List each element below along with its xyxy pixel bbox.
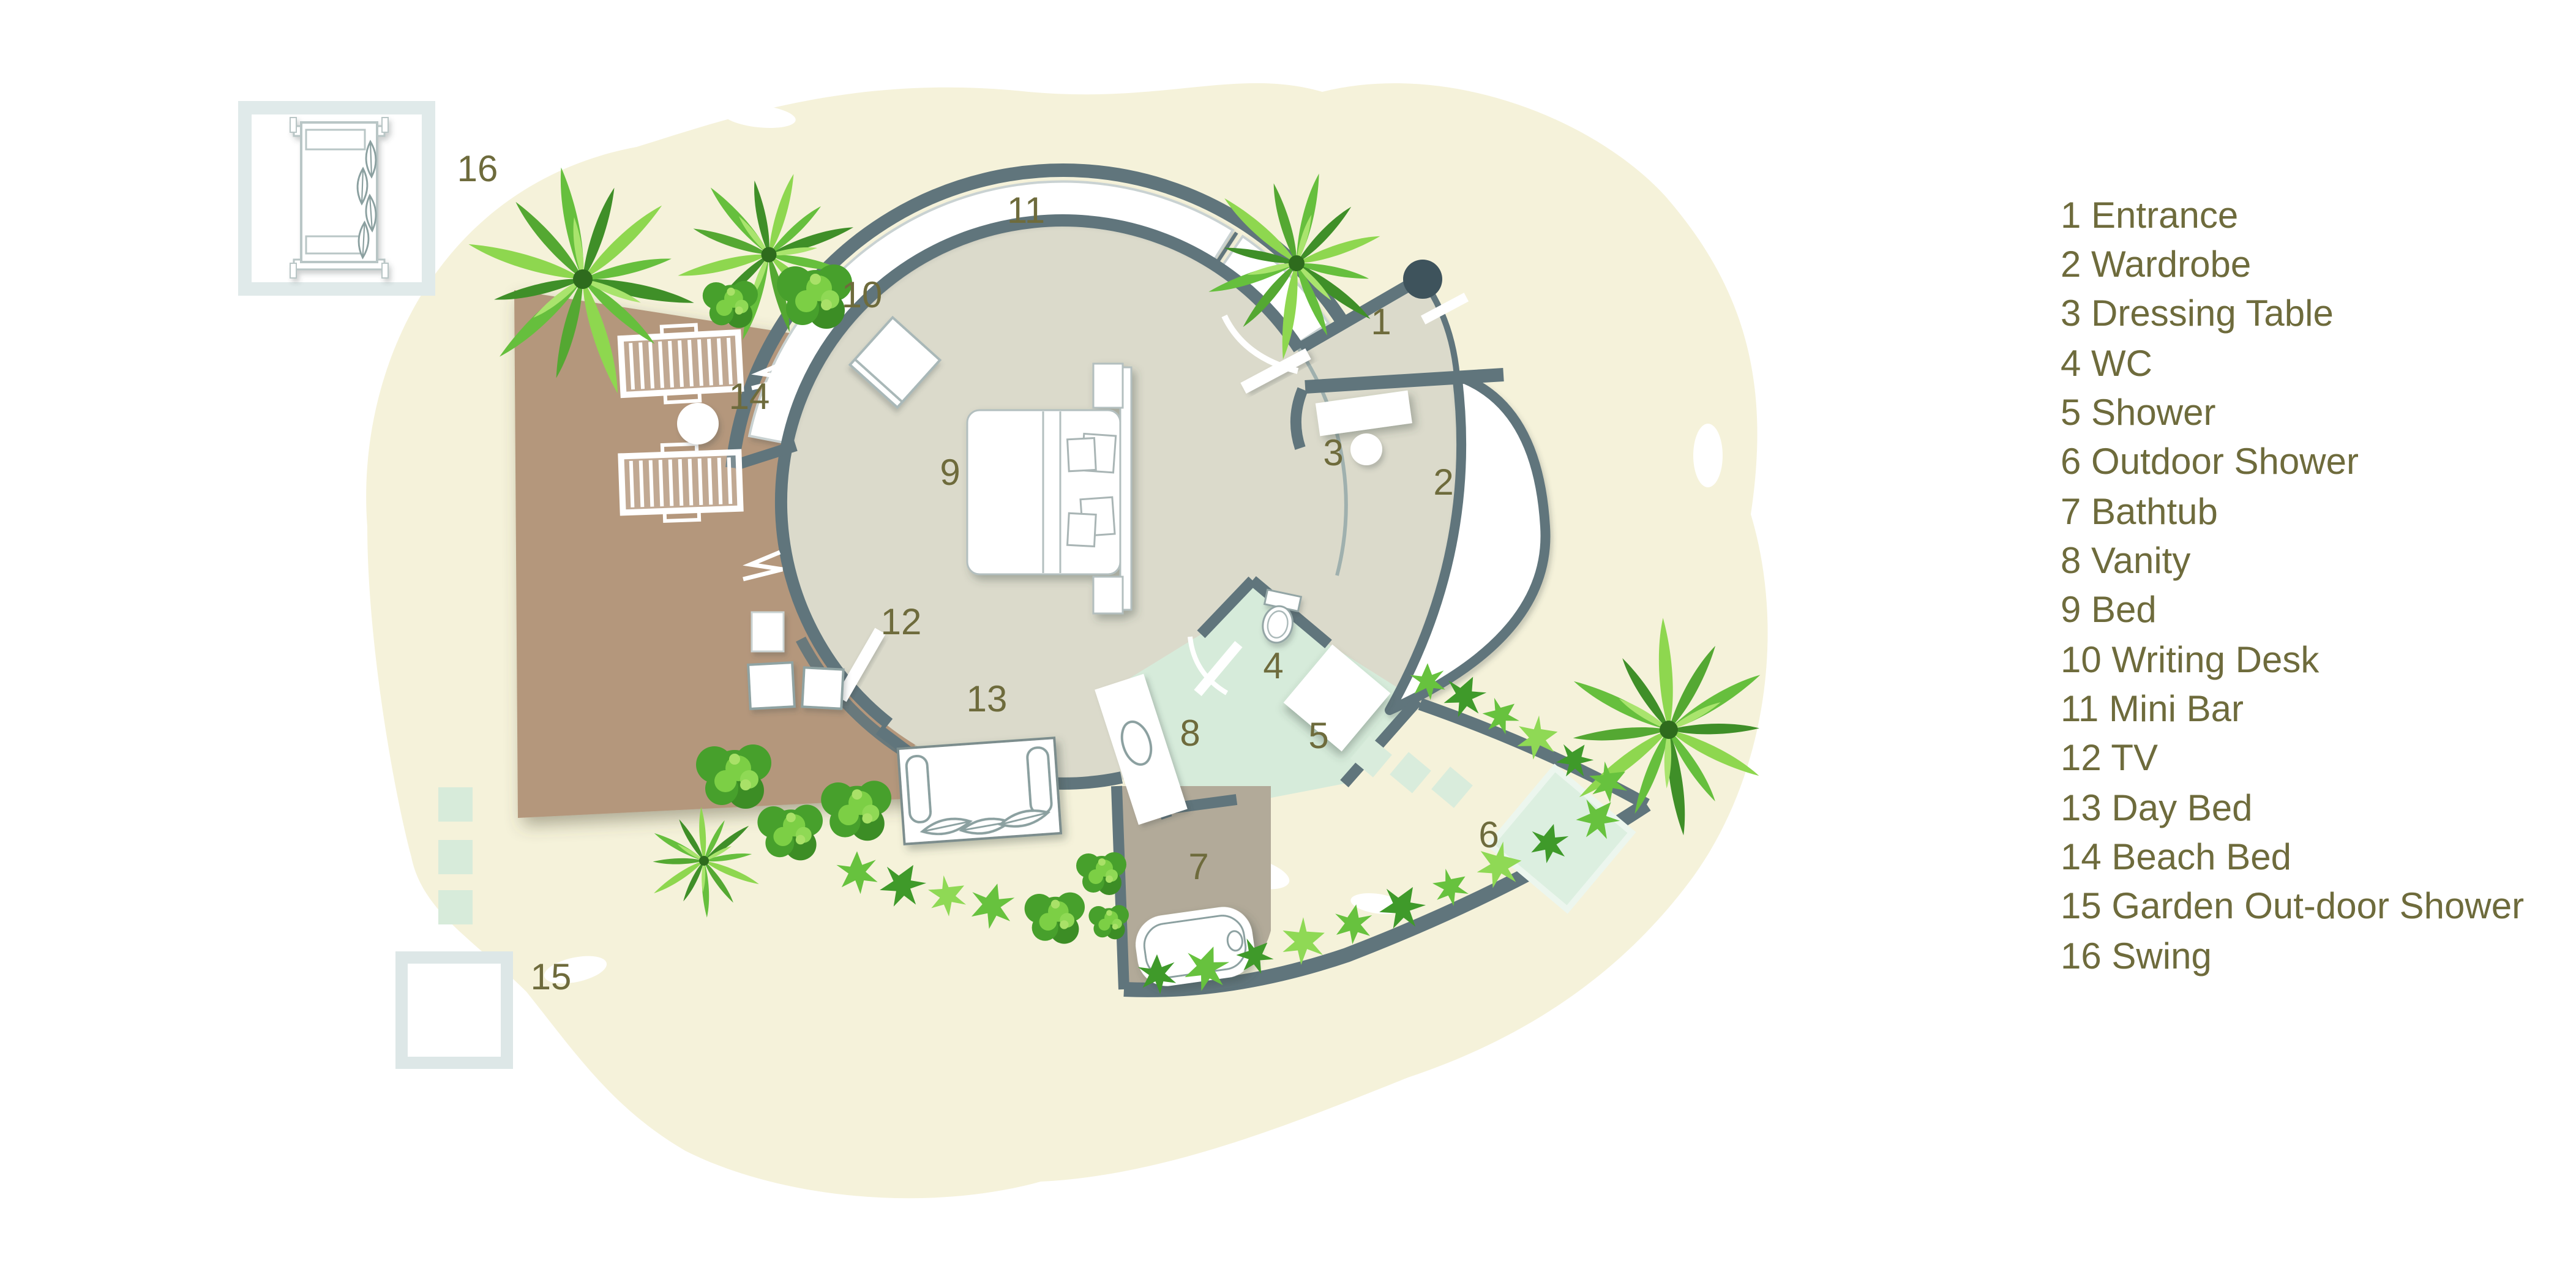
bed-pillow-1b	[1068, 438, 1096, 471]
legend-item: 5 Shower	[2061, 392, 2215, 433]
stepping-square	[438, 890, 473, 924]
legend-item: 3 Dressing Table	[2061, 293, 2334, 334]
swing-post	[290, 263, 296, 278]
nightstand-bottom	[1093, 577, 1123, 613]
beach-bed-lounger	[620, 323, 741, 405]
plan-label-tv: 12	[881, 601, 922, 642]
swing-post	[382, 118, 388, 132]
legend-item: 9 Bed	[2061, 589, 2157, 630]
bed-pillow-2b	[1068, 513, 1096, 546]
garden-outdoor-shower	[402, 958, 507, 1063]
plan-label-beach-bed: 14	[729, 376, 770, 417]
dressing-stool	[1350, 433, 1382, 465]
legend-item: 6 Outdoor Shower	[2061, 441, 2359, 482]
nightstand-top	[1093, 364, 1123, 408]
swing-headrest	[306, 130, 365, 149]
legend-item: 12 TV	[2061, 737, 2158, 778]
deck-side-table	[752, 612, 784, 651]
plan-label-entrance: 1	[1371, 301, 1391, 342]
deck-stool	[748, 662, 795, 709]
stepping-square	[438, 840, 473, 874]
stepping-square	[438, 787, 473, 822]
plan-label-mini-bar: 11	[1007, 190, 1045, 231]
garden-stepping-squares	[438, 787, 473, 924]
day-bed-armrest-right	[1027, 747, 1052, 814]
plan-label-vanity: 8	[1180, 713, 1200, 754]
plan-label-bed: 9	[940, 452, 960, 493]
legend-item: 13 Day Bed	[2061, 787, 2253, 828]
plan-label-swing: 16	[457, 148, 498, 189]
plan-label-dressing-table: 3	[1323, 432, 1343, 473]
legend-item: 11 Mini Bar	[2061, 688, 2244, 729]
plan-label-shower: 5	[1308, 715, 1328, 756]
legend-item: 7 Bathtub	[2061, 491, 2218, 532]
swing-post	[290, 118, 296, 132]
deck-round-table	[677, 403, 719, 444]
legend-item: 4 WC	[2061, 343, 2152, 384]
legend-item: 2 Wardrobe	[2061, 244, 2251, 285]
floor-plan-image: 1 2 3 4 5 6 7 8 9 10 11 12 13 14 15 16 1…	[0, 0, 2576, 1262]
plan-label-wardrobe: 2	[1433, 462, 1453, 503]
entrance-pivot	[1403, 260, 1442, 299]
swing-post	[382, 263, 388, 278]
plan-label-bathtub: 7	[1188, 846, 1208, 887]
swing	[245, 108, 429, 289]
swing-bed	[290, 118, 388, 278]
plan-label-wc: 4	[1263, 645, 1283, 686]
plan-label-writing-desk: 10	[842, 274, 883, 315]
legend-item: 8 Vanity	[2061, 540, 2190, 581]
beach-bed-lounger	[621, 443, 741, 523]
plan-label-garden-shower: 15	[531, 956, 572, 997]
swing-footrest	[306, 236, 365, 253]
legend-item: 15 Garden Out-door Shower	[2061, 885, 2524, 926]
plan-label-day-bed: 13	[967, 678, 1008, 719]
legend-item: 10 Writing Desk	[2061, 639, 2320, 680]
legend-item: 14 Beach Bed	[2061, 836, 2291, 877]
plan-label-outdoor-shower: 6	[1478, 814, 1499, 855]
deck-stool	[802, 667, 843, 708]
day-bed	[898, 738, 1061, 844]
legend-item: 16 Swing	[2061, 935, 2212, 976]
legend-item: 1 Entrance	[2061, 195, 2238, 236]
day-bed-armrest-left	[906, 755, 931, 823]
floor-plan-page: 1 2 3 4 5 6 7 8 9 10 11 12 13 14 15 16 1…	[0, 0, 2576, 1262]
